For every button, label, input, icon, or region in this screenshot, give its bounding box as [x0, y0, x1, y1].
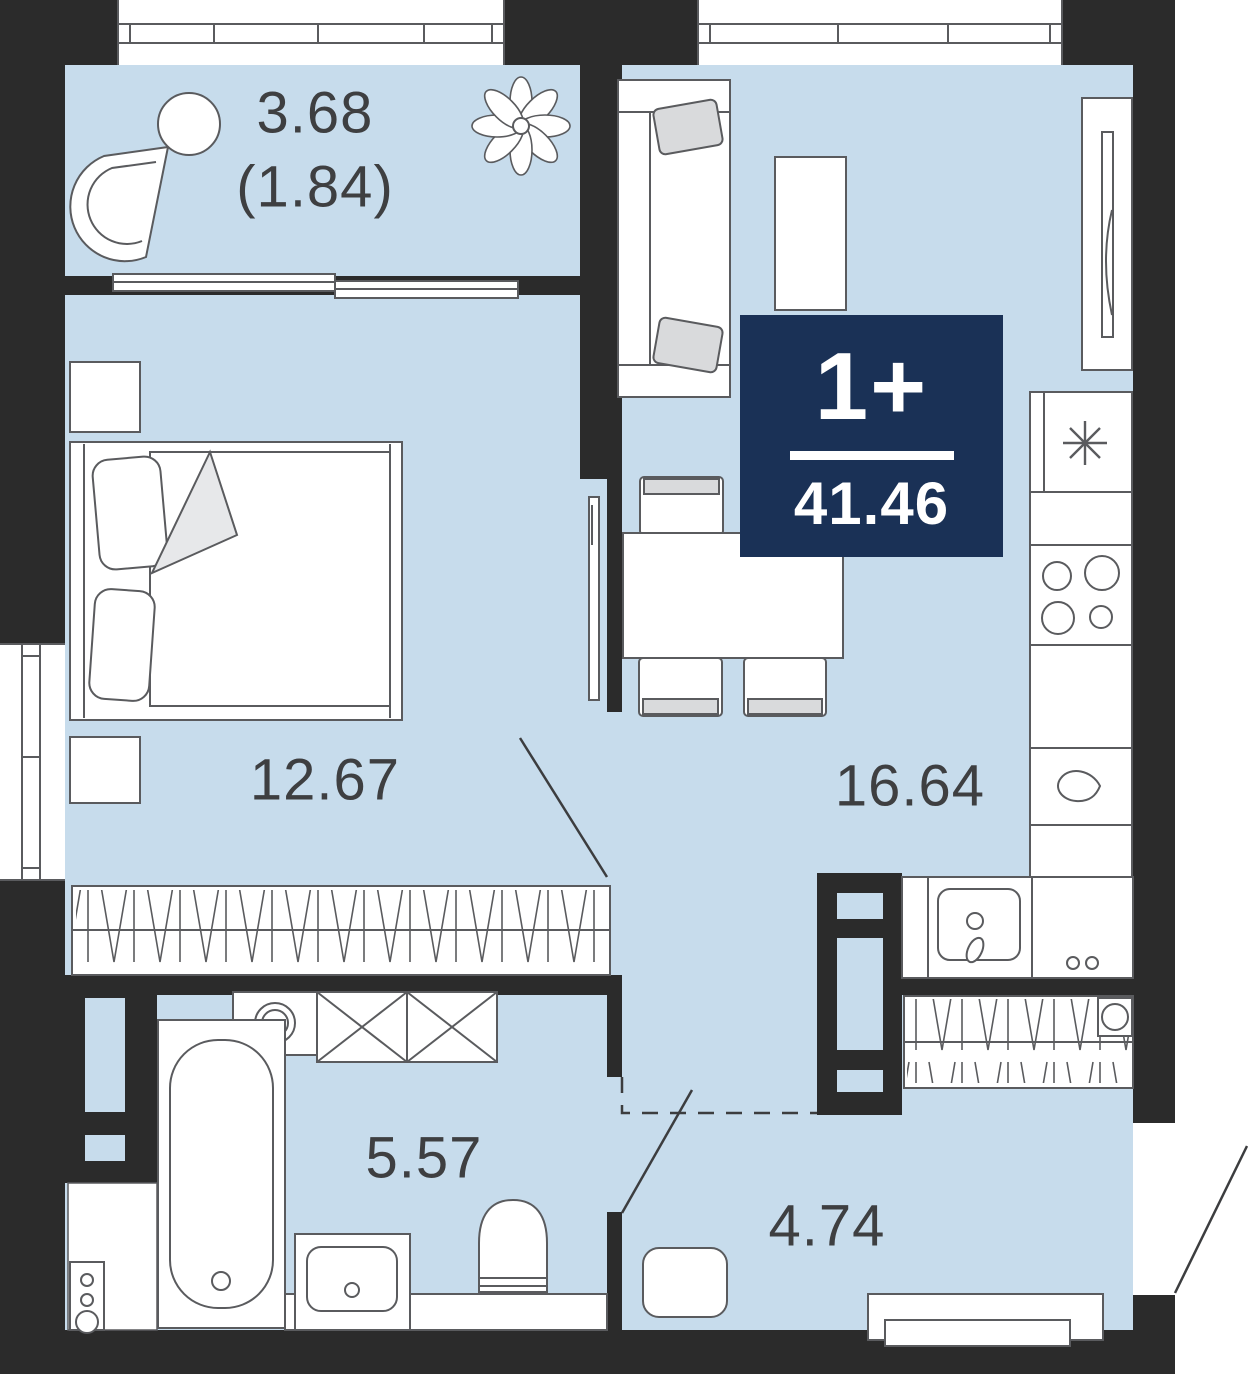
apartment-type-label: 1+	[815, 339, 928, 435]
plan-graphics	[0, 0, 1248, 1374]
kitchen-counter-icon	[1030, 645, 1132, 748]
kettle-cabinet-icon	[1030, 748, 1132, 825]
bedroom-tv-icon	[589, 497, 599, 700]
balcony-table-icon	[158, 93, 220, 155]
bedroom-window-icon	[0, 643, 65, 881]
bathroom-sink-icon	[295, 1234, 410, 1330]
bathroom-area-label: 5.57	[366, 1125, 483, 1192]
balcony-door-window-icon	[113, 274, 518, 298]
coffee-table-icon	[775, 157, 846, 310]
kitchen-sink-icon	[902, 877, 1133, 978]
dining-chair-icon	[744, 658, 826, 716]
zone-boundary-dashed	[622, 1077, 817, 1113]
dining-chair-icon	[639, 658, 722, 716]
bathtub-icon	[158, 1020, 285, 1328]
balcony-reduced-area-label: (1.84)	[236, 154, 394, 221]
balcony-area-label: 3.68	[257, 80, 374, 147]
apartment-total-area: 41.46	[794, 474, 949, 534]
nightstand-bottom-icon	[70, 737, 140, 803]
tv-cabinet-icon	[1082, 98, 1132, 370]
floor-plan: 3.68 (1.84) 12.67 16.64 5.57 4.74 1+ 41.…	[0, 0, 1248, 1374]
fridge-icon	[1030, 392, 1132, 492]
badge-divider	[790, 451, 954, 460]
nightstand-top-icon	[70, 362, 140, 432]
wardrobe-icon	[72, 886, 610, 975]
living-window-icon	[697, 0, 1063, 65]
sofa-icon	[618, 80, 730, 397]
armchair-icon	[70, 147, 168, 261]
bathroom-door-swing	[622, 1090, 692, 1213]
balcony-window-icon	[117, 0, 505, 65]
dining-chair-icon	[640, 477, 723, 535]
hallway-area-label: 4.74	[769, 1193, 886, 1260]
storage-cabinet-icon	[317, 992, 497, 1062]
boiler-icon	[70, 1262, 104, 1333]
plant-icon	[472, 77, 570, 175]
bedroom-door-swing	[520, 738, 607, 877]
kitchen-living-area-label: 16.64	[835, 753, 985, 820]
toilet-icon	[479, 1200, 547, 1292]
shoe-bench-icon	[868, 1294, 1103, 1346]
entry-door-swing	[1175, 1146, 1247, 1293]
kitchen-counter-icon	[1030, 492, 1132, 545]
mirror-icon	[1098, 998, 1132, 1036]
apartment-badge: 1+ 41.46	[740, 315, 1003, 557]
rug-icon	[643, 1248, 727, 1317]
kitchen-counter-icon	[1030, 825, 1132, 877]
stove-icon	[1030, 545, 1132, 645]
bedroom-area-label: 12.67	[250, 747, 400, 814]
double-bed-icon	[70, 442, 402, 720]
